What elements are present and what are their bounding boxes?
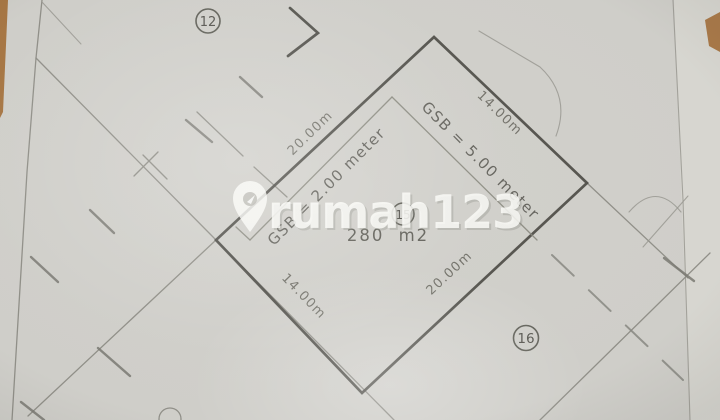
lot-number-label: 12 [200, 15, 217, 30]
lot-number-label: 16 [517, 331, 534, 347]
site-plan-drawing: 20.00m 14.00m 14.00m 20.00m GSB = 2.00 m… [0, 0, 720, 420]
watermark: rumah123 rumah123 [233, 181, 525, 241]
site-plan-photo: 20.00m 14.00m 14.00m 20.00m GSB = 2.00 m… [0, 0, 720, 420]
watermark-text: rumah123 [268, 185, 523, 239]
pin-inner-mark [243, 192, 257, 206]
